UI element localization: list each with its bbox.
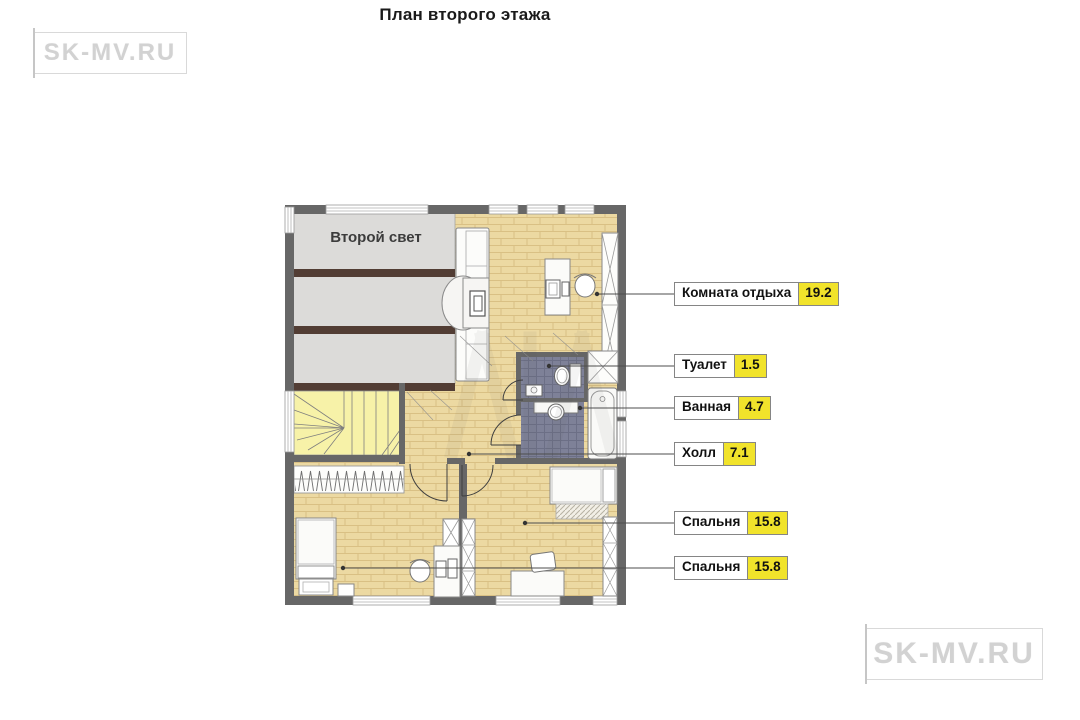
room-name: Ванная bbox=[675, 397, 738, 419]
room-name: Спальня bbox=[675, 557, 747, 579]
room-area-badge: 1.5 bbox=[734, 355, 766, 377]
nightstand bbox=[338, 584, 354, 596]
desk bbox=[511, 571, 564, 596]
room-area-badge: 7.1 bbox=[723, 443, 755, 465]
rug bbox=[556, 504, 608, 519]
room-area-badge: 19.2 bbox=[798, 283, 837, 305]
room-area-badge: 15.8 bbox=[747, 512, 786, 534]
room-label-rest-room: Комната отдыха 19.2 bbox=[674, 282, 839, 306]
room-label-bedroom-2: Спальня 15.8 bbox=[674, 556, 788, 580]
room-label-bathroom: Ванная 4.7 bbox=[674, 396, 771, 420]
room-name: Комната отдыха bbox=[675, 283, 798, 305]
logo-bottom-right: SK-MV.RU bbox=[865, 628, 1043, 680]
stove bbox=[442, 276, 489, 330]
second-light-label: Второй свет bbox=[330, 228, 422, 248]
room-name: Туалет bbox=[675, 355, 734, 377]
room-label-bedroom-1: Спальня 15.8 bbox=[674, 511, 788, 535]
chair bbox=[575, 275, 595, 297]
staircase bbox=[294, 391, 400, 455]
room-area-badge: 15.8 bbox=[747, 557, 786, 579]
floor-plan-page: План второго этажа SK-MV.RU bbox=[0, 0, 1080, 720]
closet-hangers bbox=[294, 466, 404, 493]
floor-plan-drawing bbox=[0, 0, 1080, 720]
chair bbox=[530, 551, 556, 572]
room-name: Спальня bbox=[675, 512, 747, 534]
room-label-hall: Холл 7.1 bbox=[674, 442, 756, 466]
room-label-toilet: Туалет 1.5 bbox=[674, 354, 767, 378]
chair bbox=[410, 560, 430, 582]
room-area-badge: 4.7 bbox=[738, 397, 770, 419]
room-name: Холл bbox=[675, 443, 723, 465]
